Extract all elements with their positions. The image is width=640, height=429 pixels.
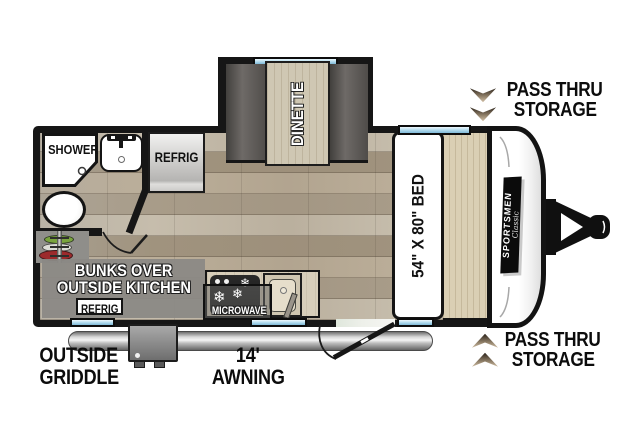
ladder-rung-1 [50,237,69,239]
refrig-label-wrap: REFRIG [150,151,203,165]
shower-label-wrap: SHOWER [44,143,96,156]
ladder-rung-3 [50,255,69,257]
pass-thru-top-line2: STORAGE [514,100,597,120]
bed-head-window [398,125,471,135]
hitch-a-frame [540,195,612,259]
refrigerator: REFRIG [148,132,205,193]
brand-logo-band: SPORTSMEN Classic [500,177,521,274]
pass-thru-bottom-line2: STORAGE [512,350,595,370]
outside-refrig-label: REFRIG [81,304,118,317]
brand-logo: SPORTSMEN Classic [500,177,521,274]
arrow-down-icon [468,86,498,123]
bunks-overlay: BUNKS OVER OUTSIDE KITCHEN REFRIG [42,259,205,318]
griddle-foot-right [154,361,165,368]
bunks-label-line1-wrap: BUNKS OVER [42,262,205,279]
outside-griddle-label: OUTSIDE GRIDDLE [28,345,130,388]
outside-griddle-line1: OUTSIDE [40,345,118,367]
microwave-label-wrap: MICROWAVE [205,305,270,317]
faucet-handle-left [111,136,115,139]
brand-series: Classic [511,211,520,238]
bed-size-label: 54" X 80" BED [410,174,427,278]
bunk-window [70,318,115,327]
outside-griddle-unit [128,324,178,362]
drain-icon [118,156,125,163]
bathroom-sink [100,134,143,172]
shower-label: SHOWER [48,143,98,156]
faucet-spout [119,141,123,148]
dinette-bench-right [330,64,368,163]
griddle-foot-left [134,361,145,368]
outside-griddle-line2: GRIDDLE [39,367,118,389]
bathroom-door-swing [102,231,150,259]
pass-thru-bottom-line1: PASS THRU [505,330,601,350]
dinette-bench-left [226,64,267,163]
bunks-label-line2-wrap: OUTSIDE KITCHEN [42,279,205,296]
floorplan-canvas: DINETTE 54" X 80" BED SPORTSMEN Classic … [0,0,640,429]
bunks-label-line1: BUNKS OVER [75,262,172,279]
pass-thru-storage-top-label: PASS THRU STORAGE [498,80,612,120]
dinette-label: DINETTE [288,81,308,145]
refrig-label: REFRIG [155,151,199,165]
awning-line2: AWNING [212,367,285,389]
bunks-label-line2: OUTSIDE KITCHEN [56,279,190,296]
ladder-rung-2 [50,246,69,248]
awning-label: 14' AWNING [196,345,300,388]
griddle-knob [135,353,140,358]
awning-line1: 14' [236,345,260,367]
bed-platform [443,131,492,320]
microwave-overlay: ❄ ❄ MICROWAVE [203,284,272,320]
burner-star-icon-3: ❄ [232,287,243,300]
pass-thru-top-line1: PASS THRU [507,80,603,100]
pass-thru-storage-bottom-label: PASS THRU STORAGE [496,330,610,370]
bed-foot-window [397,318,434,327]
bed-mattress: 54" X 80" BED [392,131,444,320]
toilet [42,191,86,228]
outside-refrig-box: REFRIG [76,298,123,315]
burner-star-icon-2: ❄ [213,290,226,305]
microwave-label: MICROWAVE [212,305,267,317]
kitchen-window [250,318,307,327]
faucet-handle-right [128,136,132,139]
sink-drain-icon [280,287,287,294]
dinette-table: DINETTE [265,61,330,166]
